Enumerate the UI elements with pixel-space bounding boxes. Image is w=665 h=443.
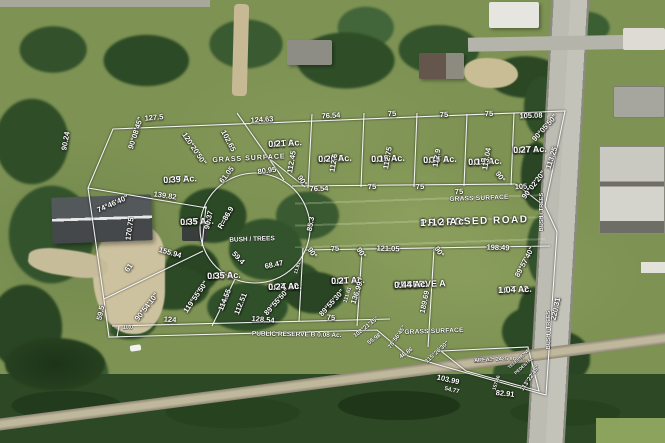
dimension-label: 112.6 [328, 153, 339, 172]
lot-12-label-line: 1.04 Ac. [498, 285, 532, 296]
dimension-label: 75 [327, 314, 336, 322]
dimension-label: 119°55'50" [182, 279, 210, 314]
dimension-label: 55.98 [366, 332, 382, 346]
dimension-label: R=86.9 [216, 205, 235, 230]
grass-surface-label-1: GRASS SURFACE [212, 153, 286, 164]
grass-surface-label-3: GRASS SURFACE [404, 326, 463, 335]
dimension-label: 76.54 [309, 185, 328, 194]
dimension-label: 80.95 [257, 166, 277, 177]
dimension-label: 78°56'45" [387, 324, 408, 350]
dimension-label: 59.5 [96, 305, 107, 321]
bush-trees-label-center: BUSH / TREES [229, 235, 275, 244]
dimension-label: 114.55 [217, 288, 233, 312]
dimension-label: 48.86 [398, 346, 414, 360]
dimension-label: 155.94 [158, 246, 182, 260]
lot-9-label-line: 0.35 Ac. [207, 271, 241, 282]
dimension-label: 75 [485, 110, 494, 118]
dimension-label: 90° [493, 170, 506, 184]
dimension-label: 189.69 [419, 290, 432, 314]
lot-7-label-line: 0.39 Ac. [163, 174, 197, 185]
dimension-label: 120°20'50" [180, 131, 208, 167]
dimension-label: 112.45 [286, 150, 298, 174]
dimension-label: 90.24 [60, 131, 71, 151]
dimension-label: 220.31 [550, 297, 563, 321]
dimension-label: 90° [432, 245, 445, 259]
dimension-label: 90°08'45" [127, 116, 145, 150]
dimension-label: 90° [305, 246, 318, 260]
dimension-label: 198.49 [486, 244, 509, 253]
dimension-label: 11.81 [294, 261, 303, 274]
dimension-label: 61 [123, 262, 134, 273]
dimension-label: 89°57'40" [514, 245, 537, 278]
public-reserve-b-label-line: PUBLIC RESERVE B 0.08 Ac. [252, 330, 342, 339]
dimension-label: 75 [416, 183, 425, 191]
dimension-label: 128.54 [251, 315, 275, 325]
dimension-label: 75 [331, 245, 340, 254]
dimension-label: 90°54'10" [134, 291, 161, 322]
dimension-label: 115°26'30" [424, 340, 450, 365]
bush-trees-label-right-1: BUSH / TREES [539, 193, 545, 232]
dimension-label: 59.4 [230, 250, 246, 266]
proposed-road-label-line: 1.12 Ac. [420, 217, 470, 230]
dimension-label: 75 [455, 188, 464, 196]
dimension-label: 75 [368, 183, 377, 191]
dimension-label: 105.08 [519, 112, 542, 121]
dimension-label: 90.37 [203, 210, 215, 230]
dimension-label: 75 [440, 111, 449, 119]
dimension-label: 90° [354, 246, 367, 260]
dimension-label: 76.54 [321, 111, 340, 120]
lot-6-label-line: 0.21 Ac. [268, 138, 302, 149]
dimension-label: 170.75 [124, 217, 135, 241]
dimension-label: 90° [295, 174, 308, 188]
dimension-label: 121.05 [376, 245, 399, 254]
dimension-label: 102.65 [219, 129, 237, 153]
dimension-label: 74°46'40" [96, 194, 130, 215]
dimension-label: 124 [163, 316, 176, 325]
dimension-label: 124.63 [250, 115, 273, 125]
dimension-label: 54.77 [444, 385, 460, 395]
dimension-label: 61.05 [218, 165, 236, 185]
dimension-label: 82.91 [495, 389, 515, 399]
dimension-label: 10.0 [123, 325, 133, 330]
dimension-label: 139.82 [153, 190, 177, 201]
dimension-label: 112.51 [233, 292, 249, 316]
dimension-label: 75 [388, 110, 397, 118]
lot-1-label-line: 0.27 Ac. [513, 145, 547, 156]
dimension-label: 85.3 [306, 216, 317, 232]
dimension-label: 68.47 [264, 259, 284, 271]
plat-labels-layer: LOT 70.39 Ac.LOT 60.21 Ac.LOT 50.20 Ac.L… [0, 0, 665, 443]
dimension-label: 127.5 [144, 113, 163, 123]
aerial-plat-map: LOT 70.39 Ac.LOT 60.21 Ac.LOT 50.20 Ac.L… [0, 0, 665, 443]
